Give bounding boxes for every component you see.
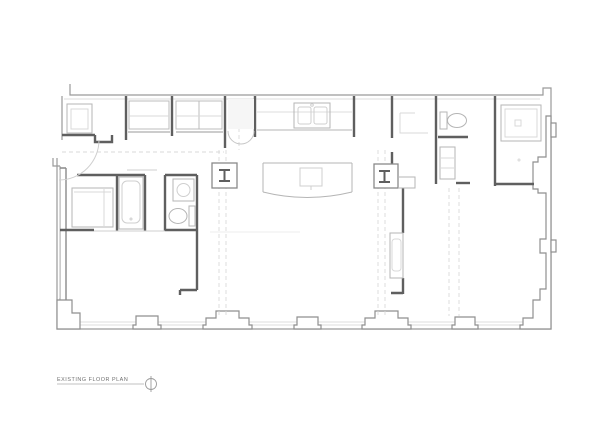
wardrobe (72, 188, 113, 227)
sink-basin (314, 107, 327, 124)
entry-double-door (228, 99, 254, 144)
pilaster-small (133, 316, 161, 329)
exterior-wall-glazing (57, 99, 551, 325)
shower-drain (515, 120, 521, 126)
exterior-walls (53, 84, 551, 329)
hall-closet (390, 233, 403, 278)
linen-shelves (440, 147, 455, 179)
steel-column-left (212, 163, 237, 188)
toilet-right (440, 112, 467, 129)
exterior-pier (551, 240, 556, 252)
floor-drain (518, 159, 520, 161)
bathtub (119, 177, 143, 229)
pilaster-corner-left (57, 300, 80, 329)
pilaster-large (362, 311, 411, 329)
utility-room-fixture (67, 104, 92, 133)
title-block: EXISTING FLOOR PLAN (57, 376, 157, 392)
steel-column-right (374, 164, 415, 188)
shower (501, 105, 541, 161)
drawing-sheet: EXISTING FLOOR PLAN (0, 0, 600, 428)
kitchen-counter (257, 103, 352, 130)
kitchen-island (263, 163, 352, 198)
door-swing-right (241, 131, 254, 144)
closets (128, 101, 223, 132)
entry-vestibule (228, 99, 254, 129)
floor-plan-drawing: EXISTING FLOOR PLAN (0, 0, 600, 428)
faucet (311, 104, 314, 107)
right-wall-pilasters (520, 116, 556, 329)
pilaster-small (452, 317, 478, 329)
bathroom-sink (173, 179, 194, 201)
toilet-left (169, 206, 195, 226)
pilaster-small (294, 317, 321, 329)
exterior-pier (551, 123, 556, 137)
cooktop (300, 168, 322, 186)
crosshair-circle-icon (146, 376, 157, 392)
pilaster-large (203, 311, 252, 329)
den-counter (400, 113, 428, 133)
drawing-title: EXISTING FLOOR PLAN (57, 377, 128, 383)
sink-basin (298, 107, 311, 124)
